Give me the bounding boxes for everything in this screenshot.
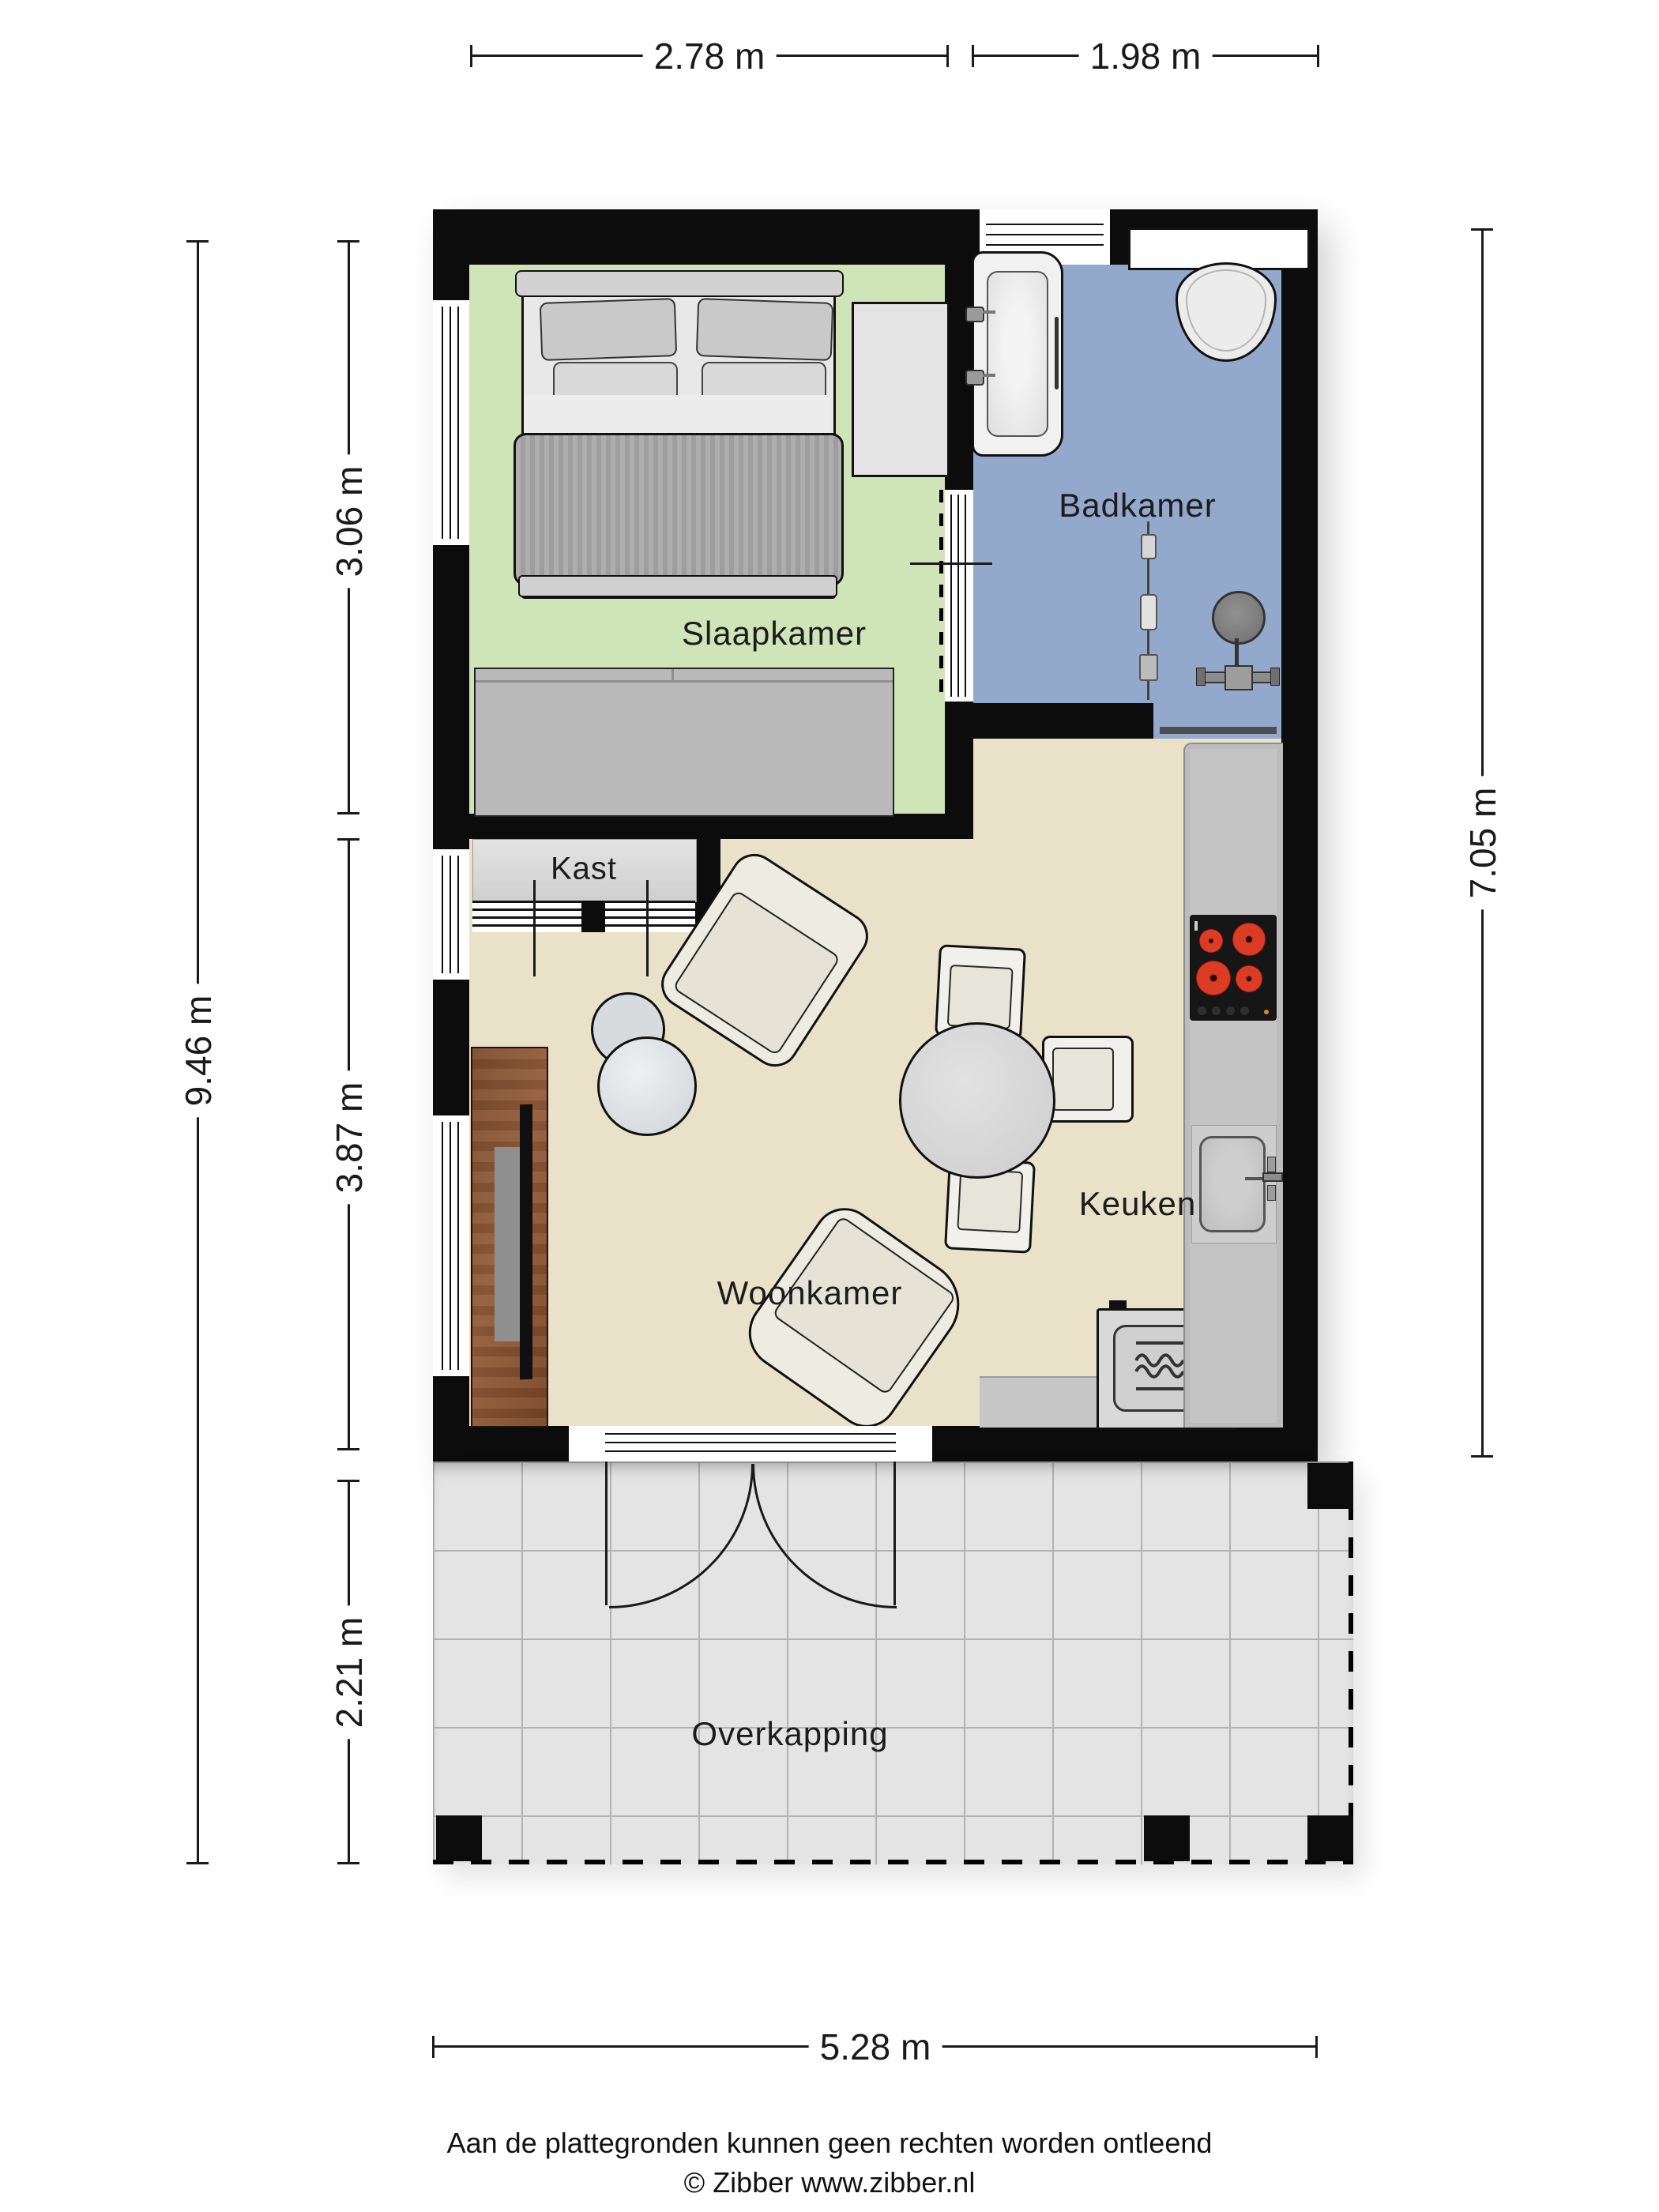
dim-label-bottom: 5.28 m	[809, 2024, 942, 2070]
burner	[1232, 923, 1266, 956]
dim-tick	[337, 838, 359, 841]
dim-tick	[646, 880, 649, 976]
door-threshold	[1160, 727, 1277, 734]
shower-rail-slider	[1140, 594, 1157, 630]
dim-tick	[533, 880, 536, 976]
shower-rail-knob	[1141, 534, 1157, 559]
shower-faucet-cap	[1196, 668, 1206, 686]
counter-top	[1190, 749, 1277, 1423]
dining-table	[899, 1022, 1055, 1179]
room-label-woonkamer: Woonkamer	[717, 1274, 903, 1312]
cooktop-mark	[1194, 921, 1198, 931]
room-label-slaapkamer: Slaapkamer	[682, 615, 867, 653]
shower-faucet-cap	[1270, 668, 1280, 686]
pillow	[696, 298, 833, 361]
cooktop-knob	[1240, 1006, 1249, 1015]
shower-faucet-body	[1224, 665, 1253, 690]
window-icon	[433, 300, 469, 545]
dresser-edge	[476, 680, 893, 683]
cooktop-indicator	[1264, 1010, 1269, 1014]
cooktop	[1190, 915, 1277, 1021]
cooktop-knob	[1198, 1006, 1206, 1015]
dim-tick	[186, 240, 209, 243]
cooktop-knob	[1212, 1006, 1221, 1015]
room-label-overkapping: Overkapping	[691, 1715, 888, 1753]
dim-tick	[1471, 228, 1493, 231]
burner	[1199, 929, 1223, 953]
cooktop-knob	[1226, 1006, 1235, 1015]
window-glazing	[433, 307, 469, 539]
dim-tick	[432, 2036, 434, 2058]
burner	[1236, 965, 1262, 992]
bathtub	[972, 251, 1063, 457]
television	[520, 1104, 532, 1379]
pillow	[540, 298, 677, 361]
kitchen-counter	[1183, 743, 1283, 1428]
shower-head	[1212, 591, 1266, 645]
wall-post	[1307, 1463, 1353, 1509]
coffee-table	[597, 1036, 697, 1136]
dresser-seam	[671, 669, 674, 682]
chair-cushion	[1052, 1048, 1114, 1111]
chair-cushion	[957, 1168, 1023, 1233]
dim-label-left-3: 2.21 m	[326, 1606, 372, 1740]
sink-faucet-handle	[1267, 1185, 1276, 1201]
dim-tick	[337, 1862, 359, 1864]
floorplan-page: 2.78 m 1.98 m 9.46 m 3.06 m 3.87 m 2.21 …	[0, 0, 1659, 2212]
faucet-spout	[983, 310, 995, 314]
bed-footboard	[518, 575, 837, 597]
dim-tick	[972, 45, 974, 67]
wall-post	[1144, 1815, 1190, 1861]
burner	[1196, 961, 1231, 995]
dining-chair	[1042, 1036, 1134, 1123]
window-icon	[433, 1115, 469, 1376]
wall-post	[436, 1815, 482, 1861]
room-label-keuken: Keuken	[1079, 1185, 1196, 1223]
dim-tick	[186, 1862, 209, 1864]
faucet-spout	[983, 374, 995, 377]
dim-label-top-2: 1.98 m	[1079, 33, 1213, 79]
desk	[852, 302, 950, 477]
sink-spout	[1245, 1177, 1264, 1180]
dashed-opening	[939, 490, 943, 702]
bed-headboard	[515, 270, 844, 297]
dim-tick	[337, 1480, 359, 1482]
dim-tick	[337, 240, 359, 243]
bed-duvet	[513, 433, 844, 586]
dim-label-left-2: 3.87 m	[326, 1071, 372, 1205]
dim-tick	[1471, 1455, 1493, 1458]
window-glazing	[433, 856, 469, 973]
dim-label-left-outer: 9.46 m	[175, 984, 221, 1118]
dim-tick	[337, 812, 359, 814]
footer-disclaimer: Aan de plattegronden kunnen geen rechten…	[447, 2127, 1213, 2160]
interior-window-icon	[945, 490, 973, 702]
room-label-kast: Kast	[551, 852, 617, 887]
overkapping-dashed-edge-right	[1349, 1461, 1353, 1864]
dim-label-right: 7.05 m	[1460, 777, 1506, 910]
window-icon	[433, 849, 469, 980]
chair-cushion	[947, 965, 1014, 1029]
overkapping-dashed-edge-bottom	[433, 1860, 1353, 1864]
window-glazing	[945, 495, 973, 697]
faucet-icon	[965, 307, 984, 322]
shower-rail-bracket	[1139, 654, 1158, 681]
room-label-badkamer: Badkamer	[1059, 487, 1216, 525]
bathtub-handle	[1055, 317, 1059, 389]
toilet-seat	[1186, 269, 1266, 352]
sink-faucet-handle	[1267, 1157, 1276, 1172]
dim-tick	[470, 45, 472, 67]
dim-tick	[946, 45, 949, 67]
dim-label-left-1: 3.06 m	[326, 455, 372, 589]
dim-tick	[337, 1448, 359, 1450]
window-glazing	[433, 1122, 469, 1370]
kitchen-sink	[1199, 1136, 1266, 1232]
dim-tick	[1315, 2036, 1318, 2058]
closet-door-divider	[581, 901, 605, 932]
wall-post	[1307, 1815, 1353, 1861]
sink-faucet	[1262, 1172, 1283, 1182]
dresser	[474, 668, 894, 817]
bathtub-basin	[987, 271, 1048, 437]
dim-label-top-1: 2.78 m	[643, 33, 777, 79]
footer-copyright: © Zibber www.zibber.nl	[684, 2166, 976, 2199]
dim-tick	[1317, 45, 1319, 67]
dim-tick	[910, 562, 992, 565]
faucet-icon	[965, 370, 984, 386]
